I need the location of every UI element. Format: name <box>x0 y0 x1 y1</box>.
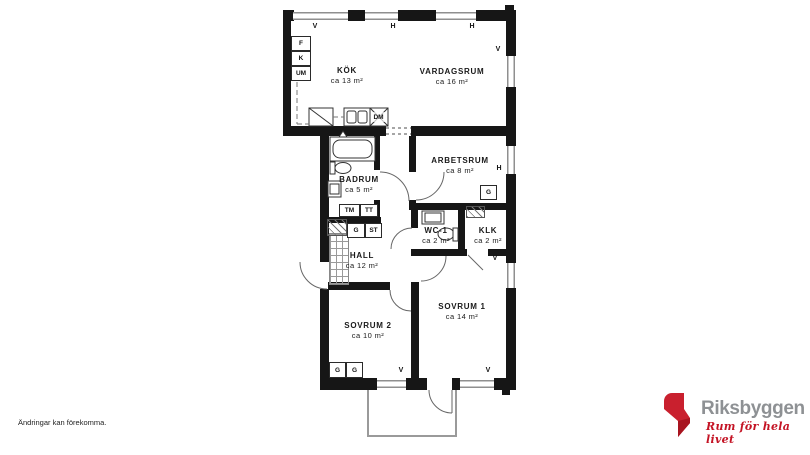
disclaimer-text: Ändringar kan förekomma. <box>18 418 106 427</box>
window-label: V <box>482 367 494 374</box>
freezer-box: K <box>291 51 311 66</box>
window <box>460 380 494 388</box>
room-label-kok: KÖK ca 13 m² <box>331 66 363 86</box>
balcony-outline <box>367 390 457 437</box>
tt-box: TT <box>360 204 378 217</box>
wall <box>411 210 418 228</box>
wardrobe-box: G <box>480 185 497 200</box>
wall <box>494 378 516 390</box>
entrance-door-arc <box>300 262 327 289</box>
wall <box>506 288 516 390</box>
wall <box>320 126 329 262</box>
wall <box>348 10 365 21</box>
brand-tagline: Rum för hela livet <box>706 420 802 446</box>
window <box>365 12 398 20</box>
window <box>507 263 515 288</box>
sovrum2-door-arc <box>390 290 411 311</box>
room-label-sovrum1: SOVRUM 1 ca 14 m² <box>438 302 485 322</box>
wall <box>411 282 419 378</box>
kitchen-sink-unit <box>344 108 370 126</box>
wall <box>409 136 416 172</box>
window-label: V <box>492 46 504 53</box>
wc-door-arc <box>391 228 412 249</box>
riksbyggen-logo-icon <box>662 392 698 438</box>
window <box>507 56 515 87</box>
window <box>507 146 515 174</box>
fridge-box: F <box>291 36 311 51</box>
window-label: H <box>466 23 478 30</box>
toilet-tank <box>330 162 335 174</box>
wall <box>409 203 506 210</box>
fridge-label: F <box>299 40 303 47</box>
room-label-klk: KLK ca 2 m² <box>474 226 502 246</box>
window-label: H <box>387 23 399 30</box>
wardrobe-box: G <box>329 362 346 378</box>
wall <box>374 136 380 170</box>
wall <box>506 10 516 56</box>
wall <box>283 126 386 136</box>
window-label: V <box>395 367 407 374</box>
wall <box>283 10 291 136</box>
sink-basin <box>347 111 356 123</box>
wall <box>320 289 329 390</box>
wardrobe-box: G <box>347 223 365 238</box>
dishwasher-label: DM <box>371 112 386 122</box>
g-label: G <box>353 227 358 234</box>
room-label-sovrum2: SOVRUM 2 ca 10 m² <box>344 321 391 341</box>
window-label: V <box>309 23 321 30</box>
tm-box: TM <box>339 204 360 217</box>
riksbyggen-logo: Riksbyggen Rum för hela livet <box>662 390 802 440</box>
wall <box>506 87 516 146</box>
wall <box>398 10 436 21</box>
room-label-wc1: WC-1 ca 2 m² <box>422 226 450 246</box>
corner-cabinet <box>309 108 333 126</box>
room-label-arbetsrum: ARBETSRUM ca 8 m² <box>431 156 488 176</box>
window <box>293 12 348 20</box>
st-label: ST <box>369 227 377 234</box>
corner-cabinet-diagonal <box>309 108 333 126</box>
wc-sink <box>422 211 444 224</box>
arbetsrum-door-arc <box>416 172 444 200</box>
room-label-vardagsrum: VARDAGSRUM ca 16 m² <box>420 67 485 87</box>
tm-label: TM <box>345 207 354 214</box>
sink-basin <box>358 111 367 123</box>
window <box>436 12 476 20</box>
tt-label: TT <box>365 207 373 214</box>
floorplan-page: F K UM TM TT G ST G G G DM V H H V H V V… <box>0 0 810 455</box>
wall <box>452 378 460 390</box>
sovrum1-door-arc <box>421 256 446 281</box>
g-label: G <box>486 189 491 196</box>
wall <box>458 210 465 249</box>
um-label: UM <box>296 70 306 77</box>
hall-sloped-cabinet <box>327 219 347 236</box>
window <box>377 380 406 388</box>
room-label-hall: HALL ca 12 m² <box>346 251 378 271</box>
wall <box>411 126 506 136</box>
cleaning-closet-box: ST <box>365 223 382 238</box>
k-label: K <box>299 55 304 62</box>
window-label: H <box>493 165 505 172</box>
bathtub <box>330 137 375 161</box>
wardrobe-box: G <box>346 362 363 378</box>
klk-shelf <box>466 206 485 218</box>
wall <box>320 378 377 390</box>
wall <box>406 378 427 390</box>
toilet-bowl <box>335 163 351 174</box>
wall-cap <box>502 390 510 395</box>
um-box: UM <box>291 66 311 81</box>
room-label-badrum: BADRUM ca 5 m² <box>339 175 379 195</box>
wall <box>411 249 467 256</box>
bathtub-inner <box>333 140 372 158</box>
window-label: V <box>489 255 501 262</box>
g-label: G <box>352 367 357 374</box>
g-label: G <box>335 367 340 374</box>
klk-door-leaf <box>468 255 483 270</box>
brand-name: Riksbyggen <box>701 398 805 420</box>
badrum-door-arc <box>380 172 409 201</box>
wall <box>506 174 516 263</box>
